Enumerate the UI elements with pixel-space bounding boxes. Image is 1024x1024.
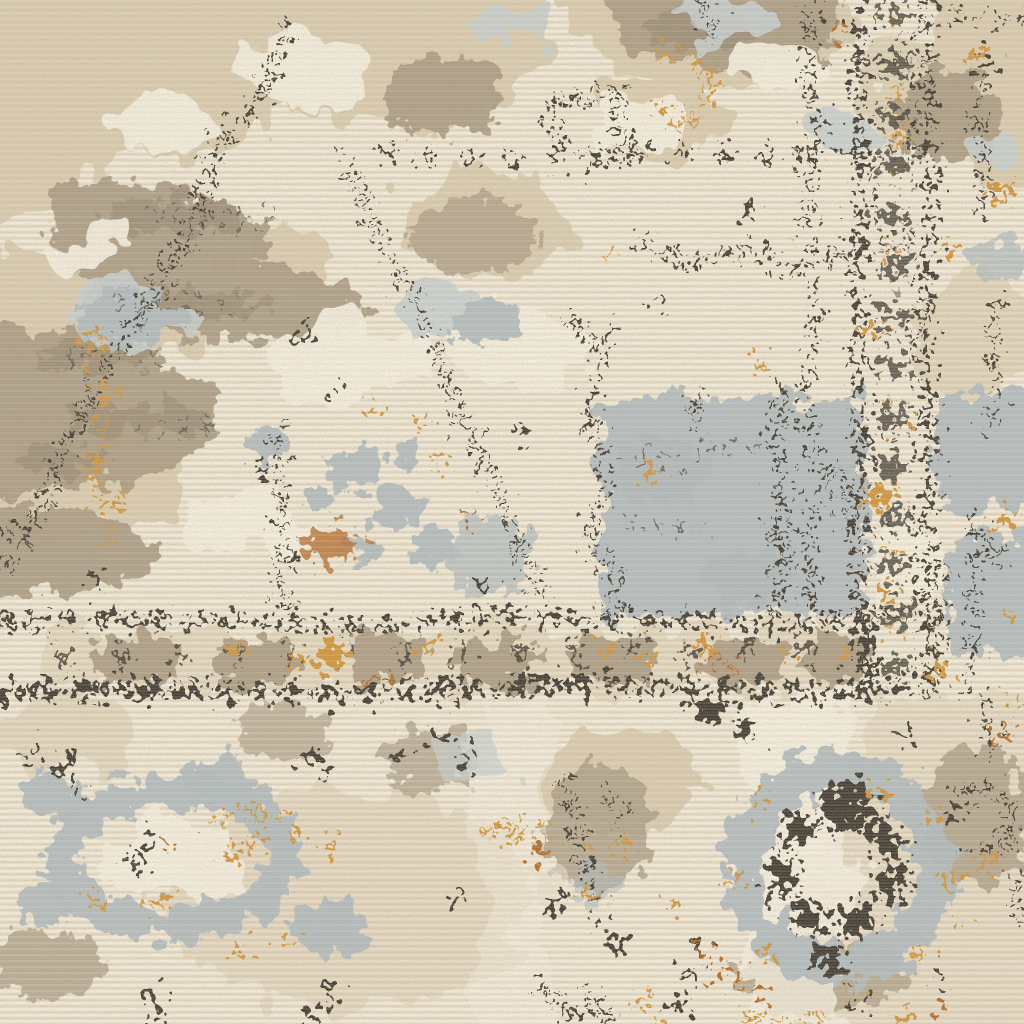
rug-photo-canvas: [0, 0, 1024, 1024]
rug-photo: [0, 0, 1024, 1024]
pile-grain-light: [0, 0, 1024, 1024]
